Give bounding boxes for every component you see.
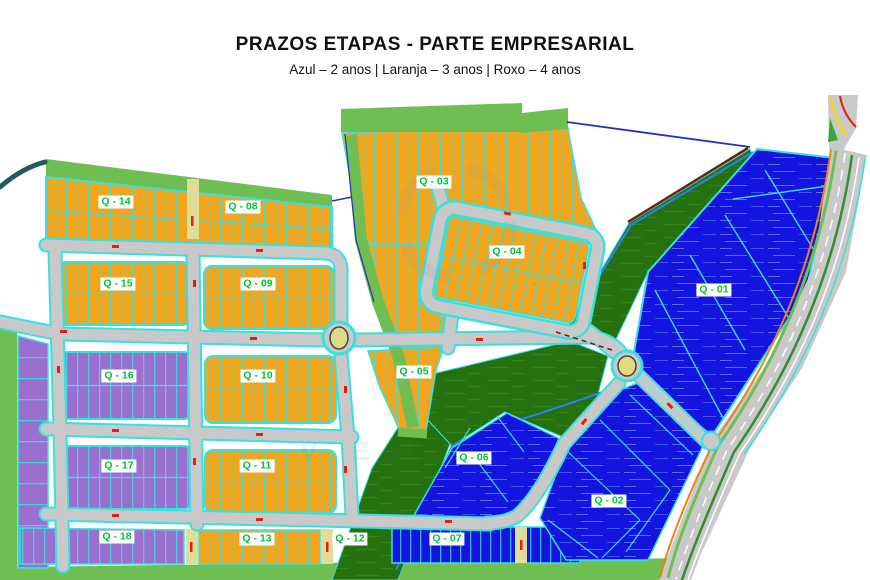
grid-row-e — [20, 527, 580, 564]
green-strip — [341, 103, 522, 132]
svg-text:V E I S: V E I S — [300, 436, 479, 466]
easement-strip — [187, 179, 199, 239]
grid-row-a — [46, 159, 332, 249]
site-plan-map: V E I S — [0, 0, 870, 580]
page-title: PRAZOS ETAPAS - PARTE EMPRESARIAL — [0, 34, 870, 56]
green-strip — [522, 108, 568, 133]
stream-line — [0, 162, 45, 187]
roundabout-west — [323, 322, 355, 354]
roundabout-east — [612, 351, 642, 381]
legend-subtitle: Azul – 2 anos | Laranja – 3 anos | Roxo … — [0, 62, 870, 77]
block-q13-area — [199, 530, 320, 564]
block-q18-area — [20, 528, 184, 564]
header: PRAZOS ETAPAS - PARTE EMPRESARIAL Azul –… — [0, 34, 870, 77]
green-strip — [398, 432, 427, 434]
site-plan-page: V E I S PRAZOS ETAPAS - PARTE EMPRESARIA… — [0, 0, 870, 580]
road-junction — [702, 432, 720, 450]
